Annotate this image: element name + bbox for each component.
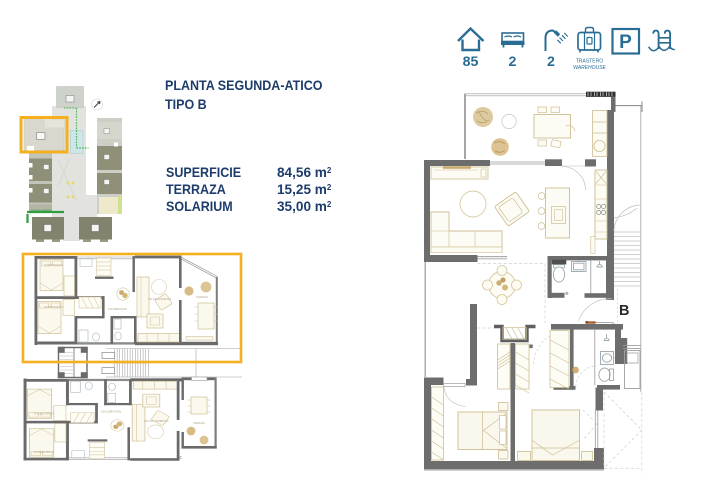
- svg-text:TERRAZA: TERRAZA: [196, 295, 208, 299]
- svg-text:DORMITORIO 2: DORMITORIO 2: [44, 263, 64, 267]
- svg-text:P: P: [619, 32, 632, 53]
- svg-text:DISTRIBUIDOR: DISTRIBUIDOR: [108, 307, 127, 311]
- svg-text:2: 2: [547, 54, 555, 70]
- svg-text:acceso peatonal: acceso peatonal: [31, 208, 52, 212]
- svg-text:2: 2: [509, 54, 517, 70]
- svg-text:TRASTERO: TRASTERO: [576, 59, 603, 65]
- svg-text:DORMITORIO 1: DORMITORIO 1: [44, 305, 64, 309]
- svg-text:85: 85: [463, 54, 479, 70]
- svg-text:TERRAZA: TERRAZA: [193, 421, 205, 425]
- svg-text:SALON-COMEDOR: SALON-COMEDOR: [148, 297, 171, 301]
- svg-text:WAREHOUSE: WAREHOUSE: [573, 65, 606, 71]
- svg-text:B: B: [619, 303, 629, 319]
